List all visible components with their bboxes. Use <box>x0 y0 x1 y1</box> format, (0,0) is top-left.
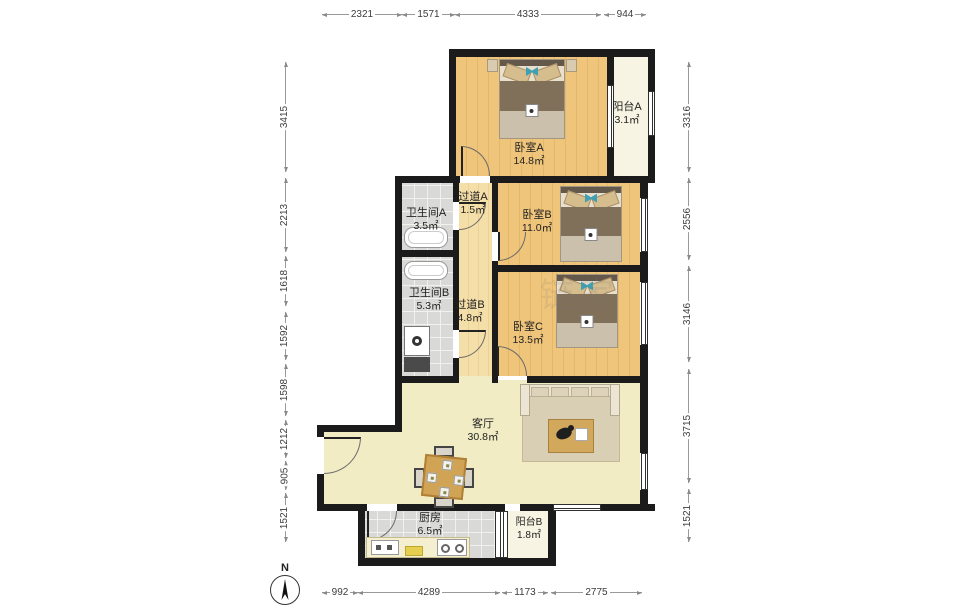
place-setting <box>439 487 450 498</box>
dim-value: 992 <box>330 587 351 599</box>
sofa-armrest <box>610 384 620 416</box>
dim-left-5: 1598 <box>279 364 292 416</box>
dim-bottom-2: 4289 <box>358 586 500 599</box>
sofa-cushion <box>591 387 609 397</box>
room-area: 3.5㎡ <box>406 220 446 234</box>
wall-segment <box>607 148 614 176</box>
bathroom-vanity <box>404 357 430 372</box>
compass-north-label: N <box>265 562 305 574</box>
dim-left-7: 905 <box>279 461 292 490</box>
dim-value: 1592 <box>280 323 292 349</box>
bed <box>499 59 565 139</box>
stove-burner <box>455 544 464 553</box>
room-name: 卧室A <box>514 141 545 155</box>
room-area: 30.8㎡ <box>468 431 499 445</box>
room-name: 过道B <box>455 298 484 312</box>
window-livingroom-bottom <box>553 504 601 511</box>
room-name: 卧室C <box>513 320 544 334</box>
wall-segment <box>449 49 655 57</box>
bed-decor <box>526 67 538 76</box>
dim-right-4: 3715 <box>682 369 695 483</box>
bedroomB-label: 卧室B 11.0㎡ <box>522 208 552 236</box>
sink-basin <box>387 545 392 550</box>
wall-segment <box>358 558 556 566</box>
corridorA-label: 过道A 1.5㎡ <box>458 190 487 218</box>
room-area: 11.0㎡ <box>522 222 552 236</box>
place-setting <box>442 460 453 471</box>
dim-left-4: 1592 <box>279 312 292 360</box>
dim-value: 4289 <box>416 587 442 599</box>
dim-top-3: 4333 <box>455 8 601 21</box>
room-area: 14.8㎡ <box>514 155 545 169</box>
wall-segment <box>640 383 648 453</box>
room-name: 厨房 <box>417 511 442 525</box>
corridor-opening-floor <box>459 376 492 383</box>
dim-value: 2775 <box>583 587 609 599</box>
dim-top-4: 944 <box>604 8 646 21</box>
dim-value: 2213 <box>280 202 292 228</box>
bedroomA-label: 卧室A 14.8㎡ <box>514 141 545 169</box>
dim-value: 1521 <box>683 502 695 528</box>
wall-segment <box>607 57 614 85</box>
bathroomA-label: 卫生间A 3.5㎡ <box>406 206 446 234</box>
room-name: 阳台B <box>516 516 543 529</box>
compass: N <box>265 562 305 612</box>
room-name: 卫生间A <box>406 206 446 220</box>
dim-bottom-3: 1173 <box>502 586 548 599</box>
window-bedroomC <box>641 282 648 345</box>
watermark: 链家 <box>540 268 620 317</box>
dim-right-5: 1521 <box>682 489 695 542</box>
bedroomC-label: 卧室C 13.5㎡ <box>513 320 544 348</box>
dim-value: 1598 <box>280 377 292 403</box>
wall-segment <box>317 425 324 437</box>
sink-basin <box>376 545 381 550</box>
wall-segment <box>492 176 498 232</box>
stove <box>437 539 467 556</box>
dim-value: 1173 <box>512 587 538 599</box>
room-name: 阳台A <box>612 100 641 114</box>
wall-segment <box>548 504 556 566</box>
dim-value: 4333 <box>515 9 541 21</box>
bed-cushion <box>526 104 539 117</box>
room-area: 4.8㎡ <box>455 312 484 326</box>
room-area: 3.1㎡ <box>612 114 641 128</box>
dim-left-6: 1212 <box>279 420 292 458</box>
dining-table <box>421 454 467 500</box>
dim-left-3: 1618 <box>279 256 292 306</box>
dim-bottom-1: 992 <box>322 586 358 599</box>
dim-value: 1212 <box>280 426 292 452</box>
wall-segment <box>640 176 648 198</box>
room-name: 客厅 <box>468 417 499 431</box>
balconyB-label: 阳台B 1.8㎡ <box>516 516 543 542</box>
dim-left-2: 2213 <box>279 178 292 252</box>
bed-decor <box>585 194 597 203</box>
wall-segment <box>492 376 497 383</box>
bed-cushion <box>581 315 594 328</box>
dim-bottom-4: 2775 <box>551 586 642 599</box>
stove-burner <box>441 544 450 553</box>
room-name: 过道A <box>458 190 487 204</box>
room-area: 6.5㎡ <box>417 525 442 539</box>
bed <box>560 186 622 262</box>
dim-value: 944 <box>615 9 636 21</box>
sofa-cushion <box>531 387 549 397</box>
room-area: 5.3㎡ <box>409 300 449 314</box>
nightstand <box>487 59 498 72</box>
wall-segment <box>490 176 655 183</box>
wall-segment <box>648 136 655 176</box>
wall-segment <box>449 57 456 176</box>
place-setting <box>426 472 437 483</box>
dim-value: 3415 <box>280 104 292 130</box>
room-name: 卫生间B <box>409 286 449 300</box>
kitchen-label: 厨房 6.5㎡ <box>417 511 442 539</box>
sofa-armrest <box>520 384 530 416</box>
north-arrow-icon <box>280 579 290 600</box>
dim-right-3: 3146 <box>682 266 695 362</box>
bathroomB-label: 卫生间B 5.3㎡ <box>409 286 449 314</box>
dim-value: 2556 <box>683 206 695 232</box>
wall-segment <box>395 176 460 183</box>
nightstand <box>566 59 577 72</box>
dim-value: 1521 <box>280 504 292 530</box>
window-bedroomB <box>641 198 648 252</box>
wall-segment <box>317 425 402 432</box>
floorplan-canvas: 链家 <box>0 0 974 612</box>
window-balconyA <box>648 91 655 136</box>
kitchen-mat <box>405 546 423 556</box>
compass-circle <box>270 575 300 605</box>
dim-value: 2321 <box>349 9 375 21</box>
dim-value: 3316 <box>683 104 695 130</box>
dim-value: 1571 <box>415 9 441 21</box>
dim-right-1: 3316 <box>682 62 695 172</box>
livingroom-label: 客厅 30.8㎡ <box>468 417 499 445</box>
dim-top-1: 2321 <box>322 8 402 21</box>
washing-machine <box>404 326 430 356</box>
dim-value: 3146 <box>683 301 695 327</box>
bathtub <box>404 261 448 280</box>
table-decor <box>568 425 574 431</box>
window-livingroom-right <box>641 453 648 490</box>
dim-value: 3715 <box>683 413 695 439</box>
room-name: 卧室B <box>522 208 552 222</box>
room-area: 13.5㎡ <box>513 334 544 348</box>
wall-segment <box>527 376 648 383</box>
dim-top-2: 1571 <box>402 8 455 21</box>
balconyA-label: 阳台A 3.1㎡ <box>612 100 641 128</box>
sofa-cushion <box>571 387 589 397</box>
corridorB-label: 过道B 4.8㎡ <box>455 298 484 326</box>
wall-segment <box>640 252 648 282</box>
dim-value: 905 <box>280 465 292 486</box>
dim-left-8: 1521 <box>279 493 292 542</box>
place-setting <box>453 475 464 486</box>
dim-value: 1618 <box>280 268 292 294</box>
bed-cushion <box>585 228 598 241</box>
dim-left-1: 3415 <box>279 62 292 172</box>
window-kitchen-balconyB <box>495 511 508 558</box>
sofa-cushion <box>551 387 569 397</box>
wall-segment <box>601 504 655 511</box>
wall-segment <box>395 376 455 383</box>
room-area: 1.5㎡ <box>458 204 487 218</box>
dim-right-2: 2556 <box>682 178 695 260</box>
wall-segment <box>395 176 402 383</box>
tray <box>575 428 588 441</box>
wall-segment <box>395 250 453 257</box>
room-area: 1.8㎡ <box>516 529 543 542</box>
wall-segment <box>648 49 655 91</box>
kitchen-sink <box>371 540 399 555</box>
wall-segment <box>358 504 365 566</box>
